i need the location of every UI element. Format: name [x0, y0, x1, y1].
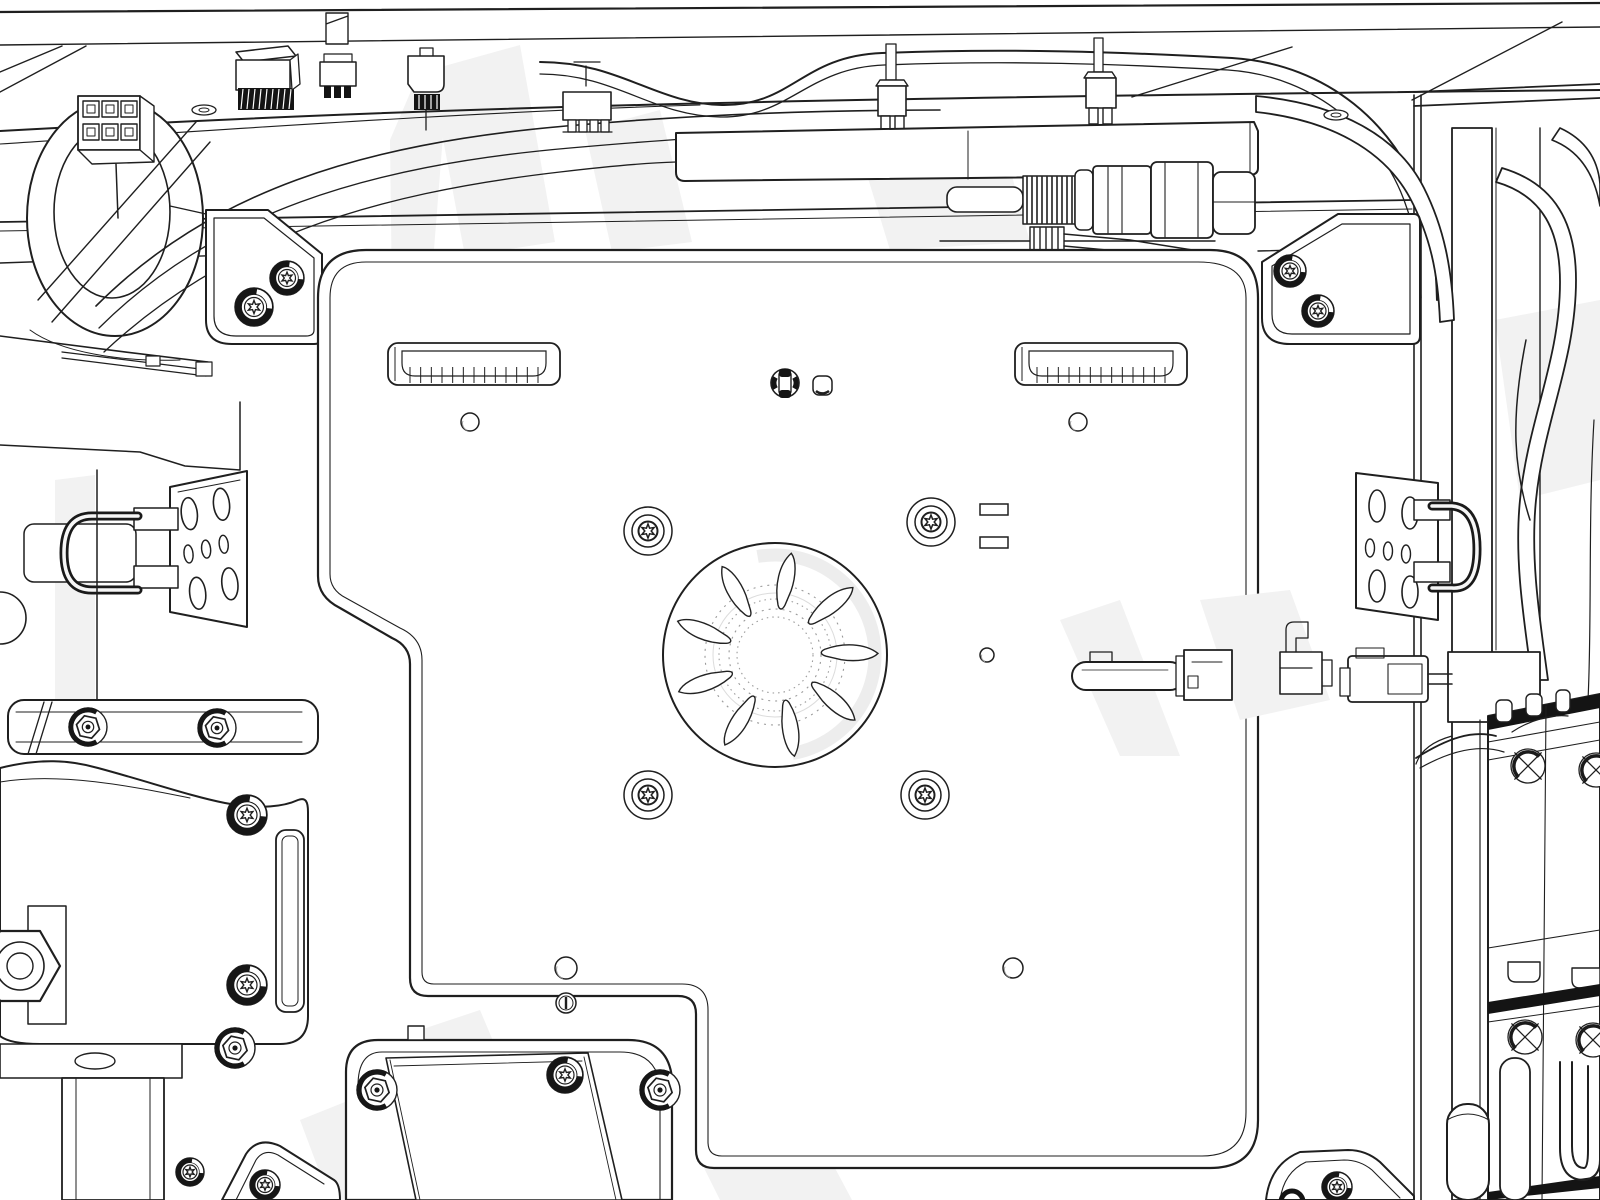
hex-flange-bolt — [69, 708, 107, 746]
slotted-screw — [556, 993, 576, 1013]
hex-flange-bolt — [215, 1028, 255, 1068]
torx-screw — [1322, 1172, 1352, 1200]
flat-oval-screw — [1324, 110, 1348, 120]
illustration-canvas — [0, 0, 1600, 1200]
hex-flange-bolt — [357, 1070, 397, 1110]
contact-pad — [980, 537, 1008, 548]
bottom-module — [346, 1026, 672, 1200]
torx-screw — [1302, 295, 1334, 327]
hatched-connector — [236, 46, 300, 110]
torx-screw — [1274, 255, 1306, 287]
two-prong-connector-b — [1084, 38, 1116, 124]
torx-screw — [227, 965, 267, 1005]
torx-screw — [547, 1057, 583, 1093]
knockout-x-mark — [1508, 1020, 1542, 1054]
torx-screw-boss — [901, 771, 949, 819]
torx-screw-boss — [624, 771, 672, 819]
plate-hole — [980, 648, 994, 662]
assembly-illustration — [0, 0, 1600, 1200]
torx-screw — [235, 288, 273, 326]
vent-slot — [1015, 343, 1187, 385]
plate-hole — [461, 413, 479, 431]
flat-oval-screw — [192, 105, 216, 115]
plate-hole — [1003, 958, 1023, 978]
hex-flange-bolt — [640, 1070, 680, 1110]
torx-screw — [270, 261, 304, 295]
torx-screw-boss — [624, 507, 672, 555]
contact-pad — [980, 504, 1008, 515]
cable-grommet — [771, 369, 799, 398]
knockout-x-mark — [1511, 749, 1545, 783]
plate-hole — [1069, 413, 1087, 431]
torx-screw — [250, 1170, 280, 1200]
plate-hole — [555, 957, 577, 979]
motor-mount-assembly — [0, 336, 318, 1200]
torx-screw — [176, 1158, 204, 1186]
torx-screw-boss — [907, 498, 955, 546]
torx-screw — [227, 795, 267, 835]
vent-slot — [388, 343, 560, 385]
hex-flange-bolt — [198, 709, 236, 747]
square-hole — [813, 376, 832, 395]
two-prong-connector — [876, 44, 908, 134]
small-terminal-connector — [320, 54, 356, 98]
